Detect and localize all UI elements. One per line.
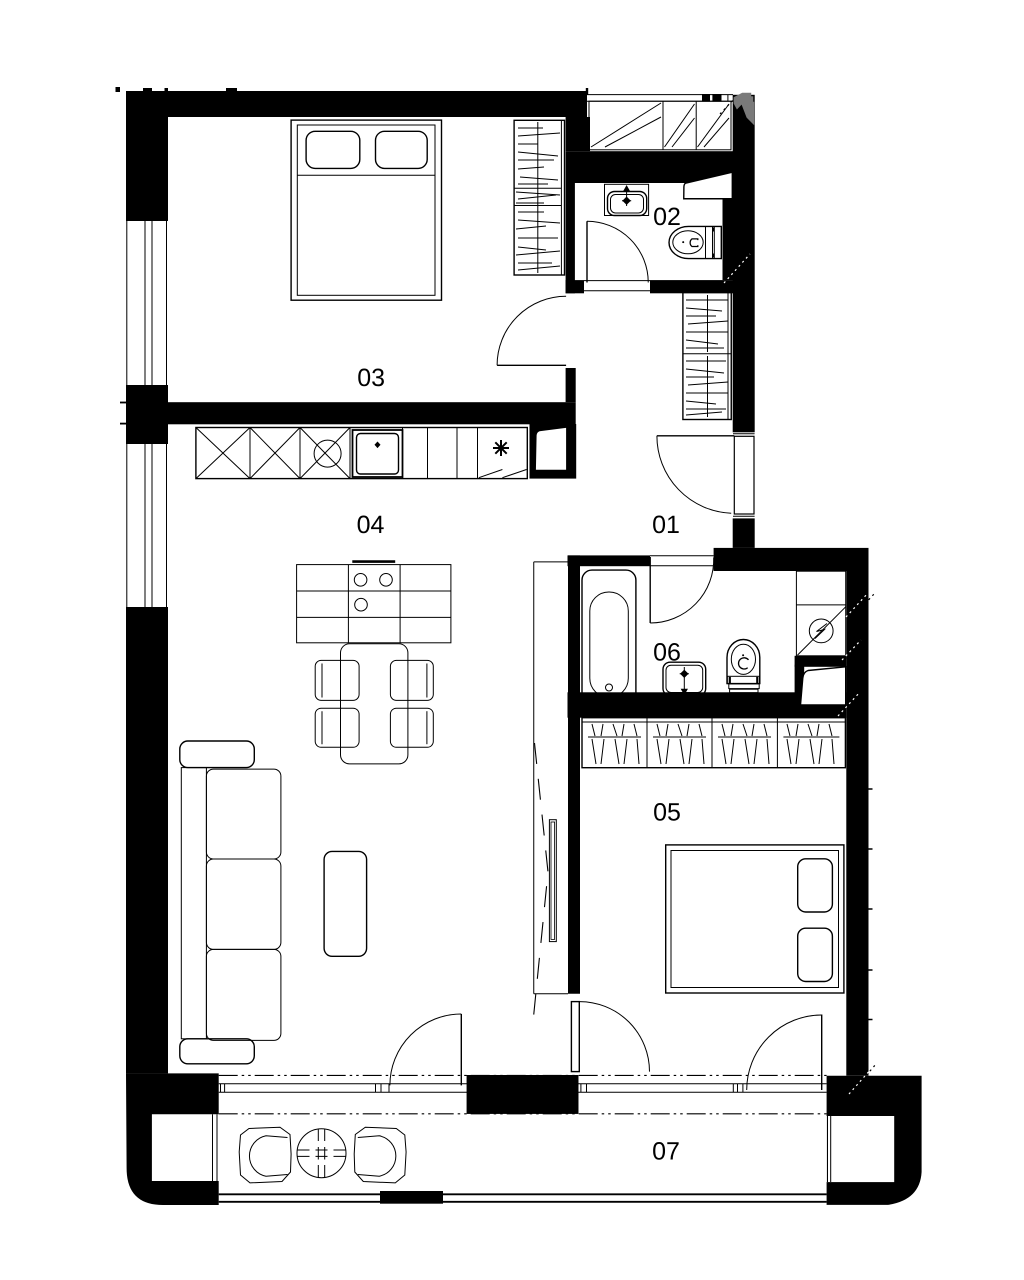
svg-text:05: 05	[653, 799, 681, 827]
svg-text:07: 07	[652, 1138, 680, 1166]
svg-text:02: 02	[653, 203, 681, 231]
svg-text:03: 03	[357, 364, 385, 392]
svg-text:04: 04	[357, 511, 385, 539]
svg-text:01: 01	[652, 511, 680, 539]
